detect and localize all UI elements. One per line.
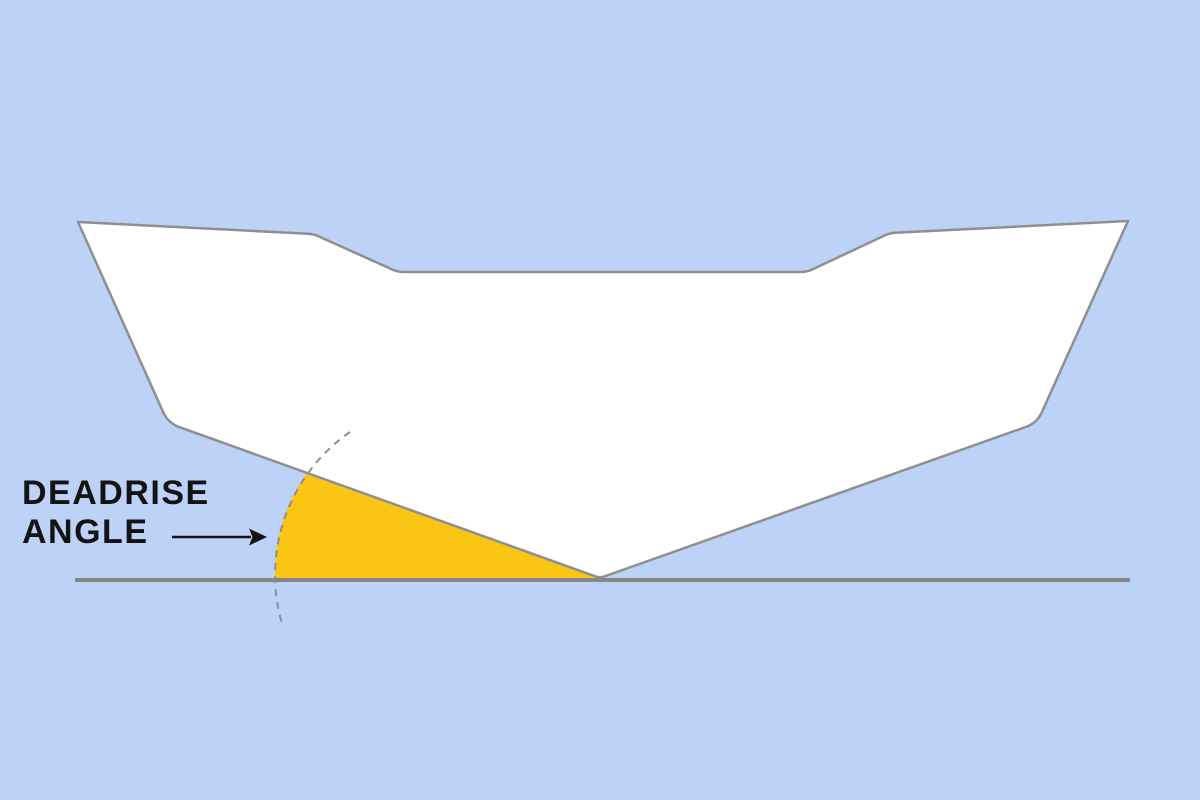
label-line-1: DEADRISE <box>22 474 210 513</box>
diagram-canvas <box>0 0 1200 800</box>
diagram-page: { "label": { "line1": "DEADRISE", "line2… <box>0 0 1200 800</box>
label-line-2: ANGLE <box>22 513 210 552</box>
deadrise-diagram: DEADRISE ANGLE <box>0 0 1200 800</box>
arrow-head <box>249 529 267 546</box>
boat-hull-outline <box>78 221 1128 577</box>
deadrise-angle-label: DEADRISE ANGLE <box>22 474 210 552</box>
